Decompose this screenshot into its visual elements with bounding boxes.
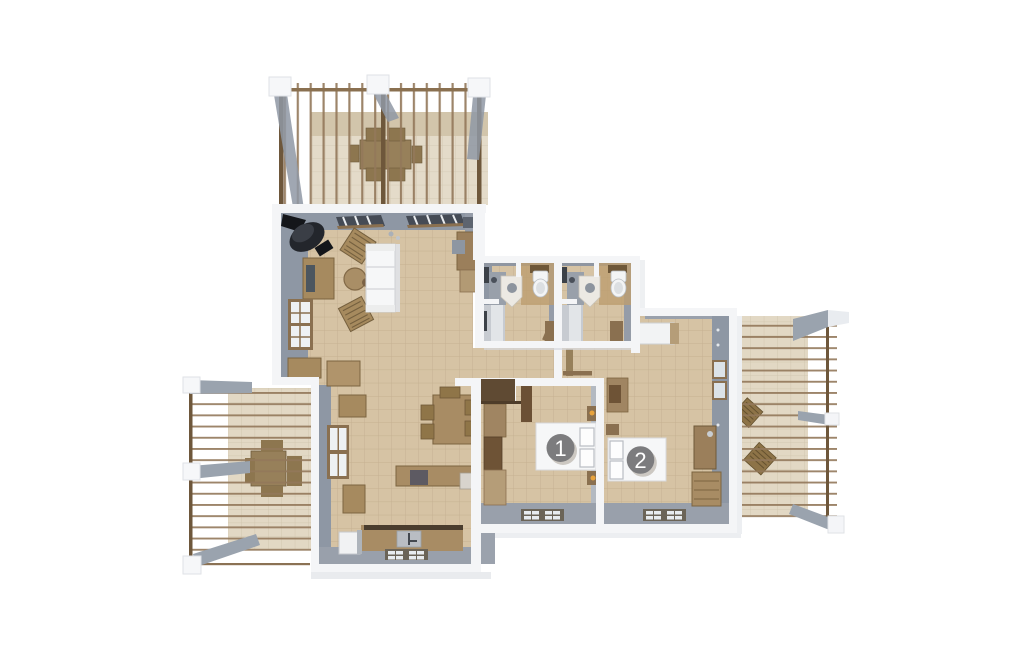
svg-text:1: 1 — [554, 436, 566, 461]
svg-text:2: 2 — [634, 448, 646, 473]
